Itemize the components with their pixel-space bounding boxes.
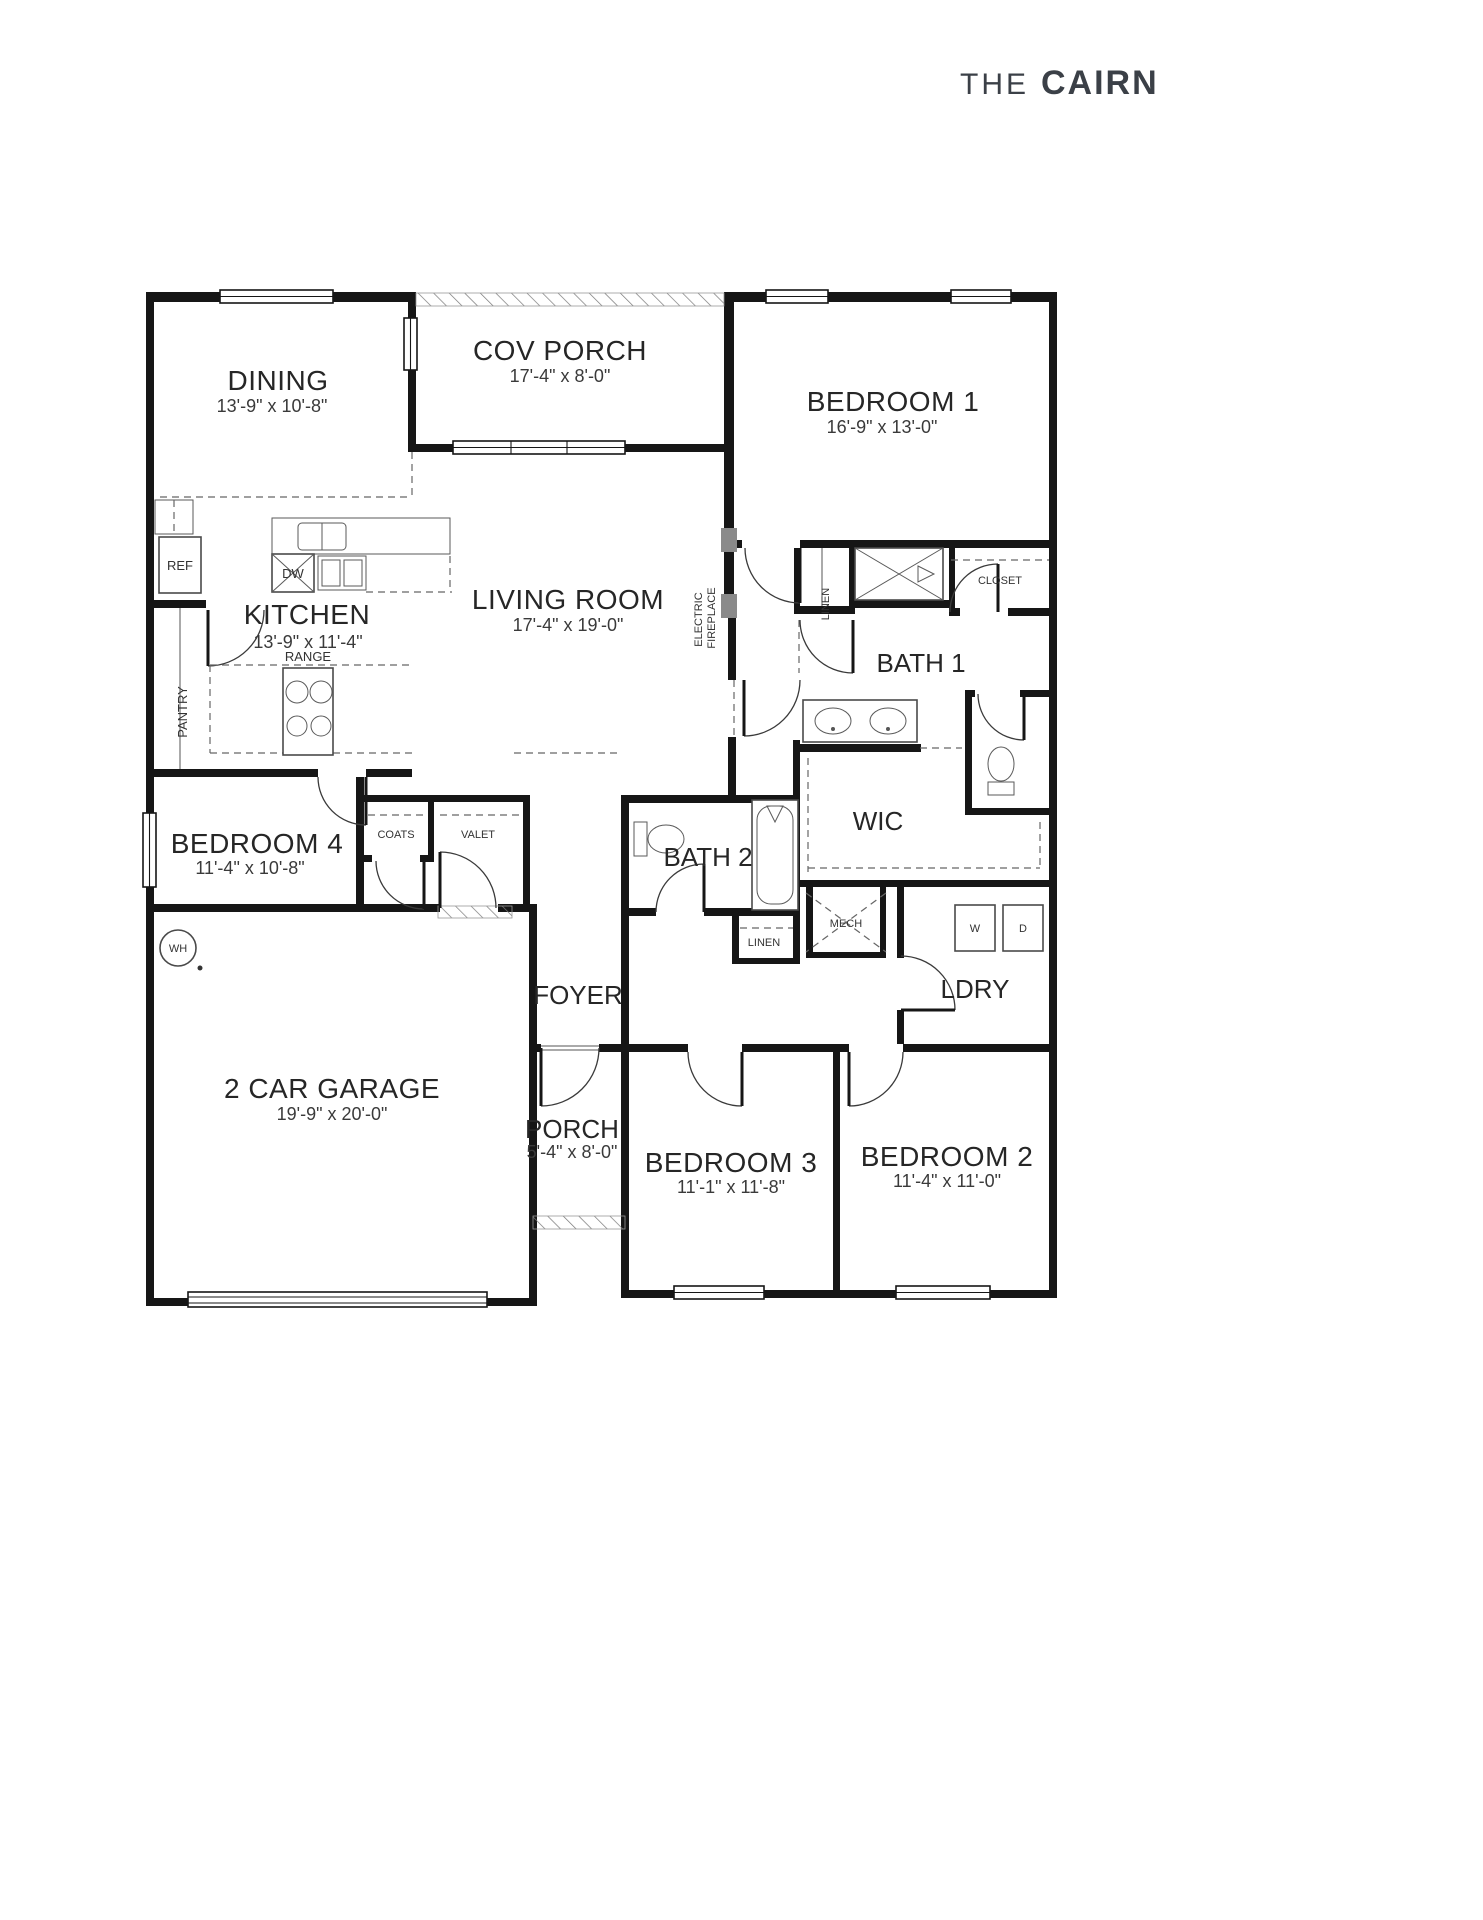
label-valet: VALET (461, 829, 495, 841)
hatch-bands (416, 293, 724, 1229)
label-linen-hall: LINEN (748, 937, 780, 949)
label-ldry: LDRY (941, 974, 1010, 1004)
dims-bedroom4: 11'-4" x 10'-8" (195, 858, 304, 878)
dims-bedroom3: 11'-1" x 11'-8" (677, 1177, 785, 1197)
label-wh: WH (169, 943, 187, 955)
label-wic: WIC (853, 806, 904, 836)
toilet-bath1 (988, 747, 1014, 795)
bathtub (752, 800, 798, 910)
dims-living: 17'-4" x 19'-0" (513, 615, 624, 635)
label-porch: PORCH (525, 1114, 619, 1144)
label-bedroom4: BEDROOM 4 (171, 828, 344, 859)
range (283, 668, 333, 755)
label-mech: MECH (830, 918, 862, 930)
garage-step (438, 906, 512, 918)
label-dw: DW (282, 566, 304, 581)
label-foyer: FOYER (533, 980, 623, 1010)
label-bedroom2: BEDROOM 2 (861, 1141, 1034, 1172)
label-pantry: PANTRY (175, 686, 190, 738)
label-range: RANGE (285, 649, 332, 664)
label-bedroom3: BEDROOM 3 (645, 1147, 818, 1178)
dims-bedroom2: 11'-4" x 11'-0" (893, 1171, 1001, 1191)
label-ref: REF (167, 558, 193, 573)
label-cov-porch: COV PORCH (473, 335, 647, 366)
cov-porch-open-edge (416, 293, 724, 306)
label-linen-bath1: LINEN (820, 588, 832, 620)
label-fireplace-line1: ELECTRIC (693, 592, 705, 646)
label-bedroom1: BEDROOM 1 (807, 386, 980, 417)
label-coats: COATS (377, 829, 414, 841)
porch-open-edge (533, 1216, 625, 1229)
label-bath2: BATH 2 (663, 842, 752, 872)
label-kitchen: KITCHEN (244, 599, 370, 630)
floorplan-drawing: DINING 13'-9" x 10'-8" COV PORCH 17'-4" … (0, 0, 1483, 1920)
label-closet-bed1: CLOSET (978, 575, 1022, 587)
bath1-vanity (803, 700, 917, 742)
label-living: LIVING ROOM (472, 584, 664, 615)
label-fireplace: ELECTRIC FIREPLACE (693, 587, 718, 648)
shower (855, 548, 943, 600)
dims-porch: 5'-4" x 8'-0" (527, 1142, 618, 1162)
label-washer: W (970, 923, 981, 935)
label-dining: DINING (228, 365, 329, 396)
label-garage: 2 CAR GARAGE (224, 1073, 440, 1104)
label-bath1: BATH 1 (876, 648, 965, 678)
label-fireplace-line2: FIREPLACE (706, 587, 718, 648)
dims-bedroom1: 16'-9" x 13'-0" (827, 417, 938, 437)
floorplan-page: THE CAIRN (0, 0, 1483, 1920)
dims-dining: 13'-9" x 10'-8" (217, 396, 328, 416)
garage-door (188, 1292, 487, 1307)
refrigerator (155, 500, 201, 593)
dims-cov-porch: 17'-4" x 8'-0" (510, 366, 611, 386)
dims-garage: 19'-9" x 20'-0" (277, 1104, 388, 1124)
label-dryer: D (1019, 923, 1027, 935)
